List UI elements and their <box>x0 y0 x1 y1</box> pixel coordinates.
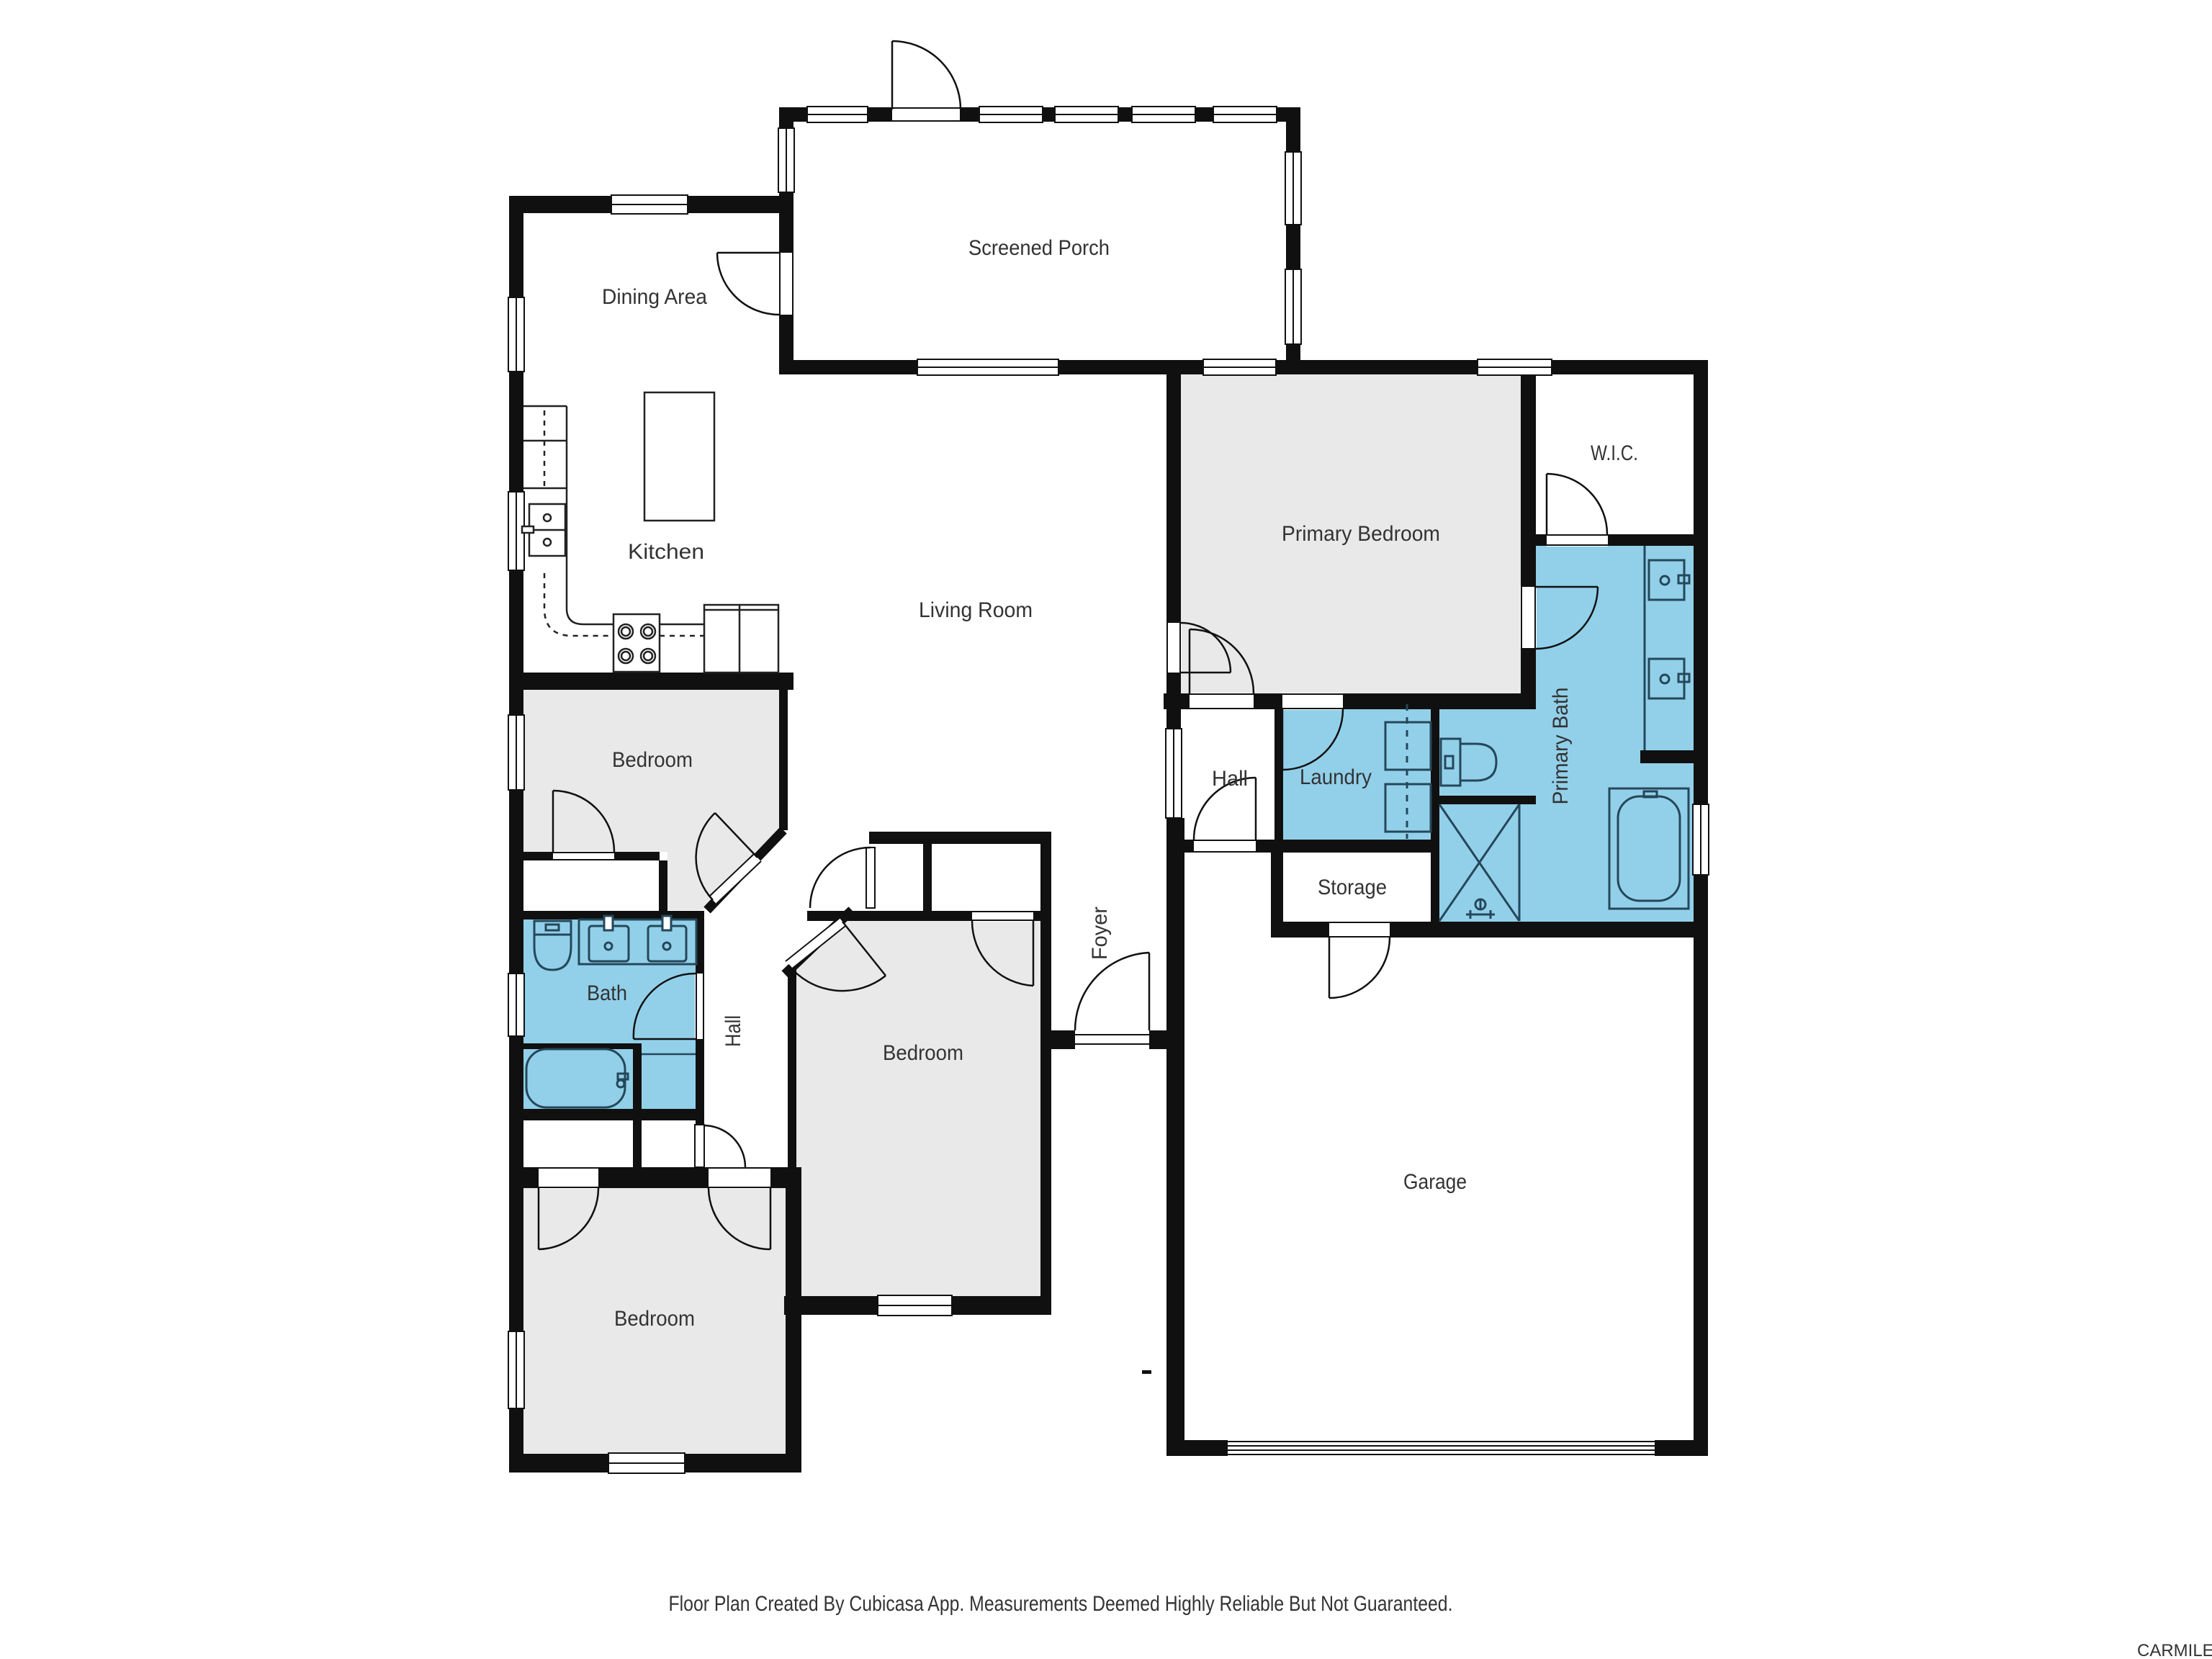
svg-text:Hall: Hall <box>1212 767 1248 791</box>
svg-text:Bath: Bath <box>587 981 627 1005</box>
svg-text:Storage: Storage <box>1318 876 1387 899</box>
svg-text:Garage: Garage <box>1403 1170 1467 1194</box>
svg-text:Living Room: Living Room <box>919 598 1033 622</box>
svg-text:Bedroom: Bedroom <box>883 1041 963 1065</box>
svg-text:Floor Plan Created By Cubicasa: Floor Plan Created By Cubicasa App. Meas… <box>669 1592 1453 1616</box>
svg-text:Dining Area: Dining Area <box>602 285 707 309</box>
svg-text:Hall: Hall <box>721 1015 745 1047</box>
svg-text:CARMILE, INC: CARMILE, INC <box>2137 1641 2212 1659</box>
svg-text:Kitchen: Kitchen <box>628 540 704 564</box>
svg-text:Primary Bedroom: Primary Bedroom <box>1282 522 1440 546</box>
svg-text:Foyer: Foyer <box>1088 907 1112 960</box>
svg-text:Bedroom: Bedroom <box>612 748 693 772</box>
svg-text:Primary Bath: Primary Bath <box>1549 688 1573 805</box>
svg-text:Bedroom: Bedroom <box>614 1307 695 1331</box>
svg-text:W.I.C.: W.I.C. <box>1591 441 1638 465</box>
svg-text:Screened Porch: Screened Porch <box>968 236 1110 260</box>
svg-text:Laundry: Laundry <box>1300 765 1372 789</box>
